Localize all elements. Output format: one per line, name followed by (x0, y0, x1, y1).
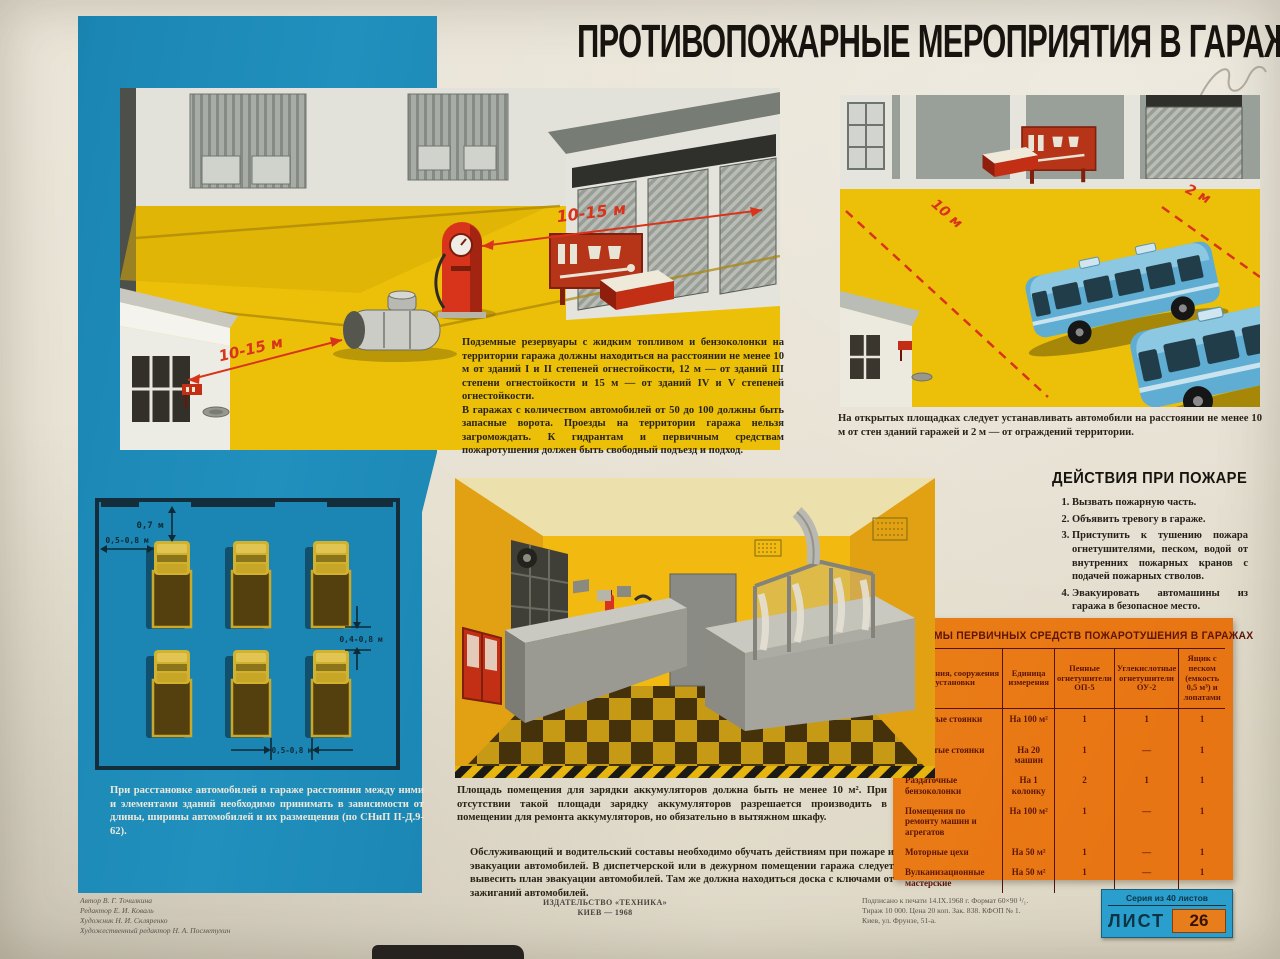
poster-title: ПРОТИВОПОЖАРНЫЕ МЕРОПРИЯТИЯ В ГАРАЖАХ (430, 16, 1250, 72)
cell: 1 (1179, 801, 1225, 842)
series-label: Серия из 40 листов (1108, 893, 1226, 906)
cell: На 100 м² (1003, 801, 1055, 842)
cell: На 50 м² (1003, 862, 1055, 893)
garage-doors-left (190, 94, 306, 188)
credits-block: Автор В. Г. Точилкина Редактор Е. И. Ков… (80, 896, 340, 935)
poster-title-text: ПРОТИВОПОЖАРНЫЕ МЕРОПРИЯТИЯ В ГАРАЖАХ (577, 14, 1280, 70)
table-row: Помещения по ремонту машин и агрегатов Н… (901, 801, 1225, 842)
table-row: Закрытые стоянки машин На 100 м² 1 1 1 (901, 708, 1225, 739)
parking-layout-diagram: 0,7 м 0,5-0,8 м 0,4-0,8 м 0,5-0,8 м (95, 498, 400, 770)
cell: На 1 колонку (1003, 770, 1055, 801)
svg-text:0,5-0,8 м: 0,5-0,8 м (272, 746, 313, 755)
publisher-block: ИЗДАТЕЛЬСТВО «ТЕХНИКА» КИЕВ — 1968 (500, 898, 710, 919)
cell: 1 (1179, 842, 1225, 862)
fire-action-item: Объявить тревогу в гараже. (1072, 513, 1248, 527)
fire-action-item: Приступить к тушению пожара огнетушителя… (1072, 529, 1248, 584)
manhole-icon (912, 373, 932, 381)
fire-actions-heading: ДЕЙСТВИЯ ПРИ ПОЖАРЕ (1052, 470, 1232, 488)
col-header: Ящик с песком (емкость 0,5 м³) и лопатам… (1179, 649, 1225, 709)
col-header: Углекислотные огнетушители ОУ-2 (1114, 649, 1178, 709)
publisher-city-year: КИЕВ — 1968 (500, 908, 710, 918)
garage-doors-middle (408, 94, 508, 180)
svg-text:0,5-0,8 м: 0,5-0,8 м (105, 536, 149, 545)
cell: — (1114, 740, 1178, 771)
fire-action-item: Эвакуировать автомашины из гаража в безо… (1072, 587, 1248, 614)
fire-actions-list: Вызвать пожарную часть. Объявить тревогу… (1052, 496, 1248, 614)
caption-paragraph: Подземные резервуары с жидким топливом и… (462, 336, 784, 404)
caption-paragraph: В гаражах с количеством автомобилей от 5… (462, 404, 784, 458)
cell: — (1114, 801, 1178, 842)
cell: 1 (1179, 740, 1225, 771)
cell: 2 (1055, 770, 1115, 801)
cell: Моторные цехи (901, 842, 1003, 862)
hazard-stripe (455, 766, 935, 778)
sheet-number: 26 (1172, 909, 1226, 933)
col-header: Пенные огнетушители ОП-5 (1055, 649, 1115, 709)
cell: 1 (1055, 801, 1115, 842)
credit-line: Художественный редактор Н. А. Посметухин (80, 926, 340, 936)
cell: 1 (1114, 708, 1178, 739)
sheet-label: ЛИСТ (1108, 911, 1165, 932)
series-sheet-badge: Серия из 40 листов ЛИСТ 26 (1101, 889, 1233, 938)
cell: На 20 машин (1003, 740, 1055, 771)
publisher-name: ИЗДАТЕЛЬСТВО «ТЕХНИКА» (500, 898, 710, 908)
svg-text:0,4-0,8 м: 0,4-0,8 м (339, 635, 383, 644)
cell: 1 (1179, 770, 1225, 801)
cell: — (1114, 842, 1178, 862)
manhole-icon (203, 407, 229, 417)
table-row: Открытые стоянки машин На 20 машин 1 — 1 (901, 740, 1225, 771)
table-row: Раздаточные бензоколонки На 1 колонку 2 … (901, 770, 1225, 801)
norms-table-title: НОРМЫ ПЕРВИЧНЫХ СРЕДСТВ ПОЖАРОТУШЕНИЯ В … (911, 630, 1216, 642)
svg-text:0,7 м: 0,7 м (136, 521, 164, 531)
cell: На 100 м² (1003, 708, 1055, 739)
cell: Помещения по ремонту машин и агрегатов (901, 801, 1003, 842)
cell: 1 (1179, 708, 1225, 739)
credit-line: Редактор Е. И. Коваль (80, 906, 340, 916)
cell: 1 (1055, 740, 1115, 771)
cell: 1 (1114, 770, 1178, 801)
open-lot-scene: 10 м 2 м (840, 95, 1260, 407)
red-cabinet (463, 628, 501, 704)
col-header: Единица измерения (1003, 649, 1055, 709)
garage-yard-caption: Подземные резервуары с жидким топливом и… (462, 336, 784, 458)
norms-table-panel: НОРМЫ ПЕРВИЧНЫХ СРЕДСТВ ПОЖАРОТУШЕНИЯ В … (893, 618, 1233, 880)
credit-line: Художник Н. И. Скляренко (80, 916, 340, 926)
parking-caption: При расстановке автомобилей в гараже рас… (110, 784, 424, 838)
cell: Вулканизационные мастерские (901, 862, 1003, 893)
cell: На 50 м² (1003, 842, 1055, 862)
fire-actions-section: ДЕЙСТВИЯ ПРИ ПОЖАРЕ Вызвать пожарную час… (1052, 470, 1248, 617)
battery-room-caption-1: Площадь помещения для зарядки аккумулято… (457, 784, 887, 825)
cell: 1 (1055, 708, 1115, 739)
photo-background-artifact (372, 945, 524, 959)
credit-line: Автор В. Г. Точилкина (80, 896, 340, 906)
house (120, 288, 238, 450)
dark-column (120, 88, 136, 320)
cell: 1 (1055, 842, 1115, 862)
battery-room-caption-2: Обслуживающий и водительский составы нео… (470, 846, 894, 900)
open-lot-caption: На открытых площадках следует устанавлив… (838, 412, 1262, 439)
poster: ПРОТИВОПОЖАРНЫЕ МЕРОПРИЯТИЯ В ГАРАЖАХ (0, 0, 1280, 959)
fire-action-item: Вызвать пожарную часть. (1072, 496, 1248, 510)
battery-room-scene (455, 478, 935, 778)
norms-table: Помещения, сооружения и установки Единиц… (901, 648, 1225, 893)
table-row: Моторные цехи На 50 м² 1 — 1 (901, 842, 1225, 862)
